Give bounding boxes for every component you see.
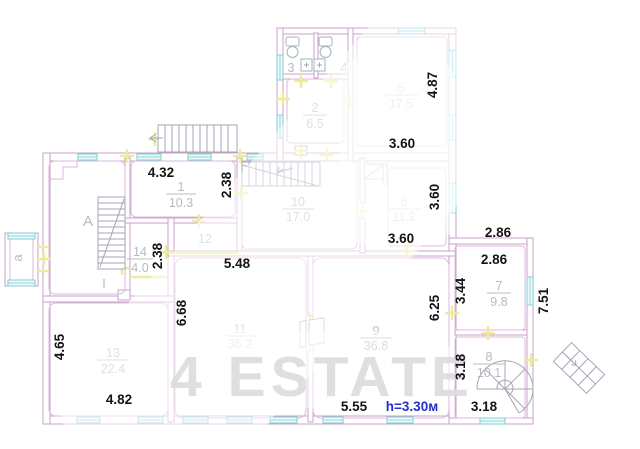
ceiling-height-note: h=3.30м — [386, 399, 438, 414]
floor-plan-canvas: 1 10.3 2 6.5 3 4 5 17.5 6 11.2 7 9.8 8 — [0, 0, 640, 449]
dim-text: 4.32 — [148, 165, 174, 180]
room-label-7: 7 9.8 — [487, 279, 511, 309]
dim-text: 2.38 — [150, 242, 165, 269]
room-area: 10.3 — [169, 196, 193, 210]
dim-text: 4.82 — [106, 392, 132, 407]
dim-text: 3.44 — [453, 277, 468, 304]
room-label-8: 8 10.1 — [473, 350, 505, 380]
dim-text: 2.86 — [481, 252, 508, 267]
room-area: 10.1 — [477, 366, 501, 380]
sink-icon — [301, 59, 325, 71]
dim-text: 2.38 — [219, 171, 234, 198]
dim-text: 4.87 — [425, 72, 440, 98]
room-number: 8 — [486, 350, 493, 364]
dim-text: 3.60 — [389, 136, 415, 151]
dim-text: 3.18 — [471, 399, 498, 414]
dim-text: 6.68 — [174, 299, 189, 326]
dim-text: 3.18 — [453, 353, 468, 380]
dim-text: 3.60 — [427, 184, 442, 210]
room-label-1: 1 10.3 — [166, 180, 196, 210]
stairwell-letter: А — [83, 213, 93, 230]
dim-text: 5.55 — [341, 399, 368, 414]
exterior-stair-top-icon — [150, 125, 237, 152]
room-number: 7 — [496, 279, 503, 293]
room-number: 14 — [133, 245, 147, 259]
dim-text: 3.60 — [388, 231, 414, 246]
room-number: 1 — [178, 180, 185, 194]
dim-text: 4.65 — [52, 333, 67, 360]
dim-text: 5.48 — [224, 256, 251, 271]
dim-text: 6.25 — [427, 294, 442, 321]
exterior-stair-right-icon — [553, 343, 604, 394]
dim-text: 2.86 — [485, 225, 512, 240]
porch-letter: а — [10, 254, 25, 262]
toilet-icon — [286, 37, 332, 58]
room-label-3: 3 — [288, 61, 295, 75]
room-area: 4.0 — [131, 261, 148, 275]
room-area: 9.8 — [490, 295, 507, 309]
dim-text: 7.51 — [536, 287, 551, 314]
floor-plan-page: 1 10.3 2 6.5 3 4 5 17.5 6 11.2 7 9.8 8 — [0, 0, 640, 449]
